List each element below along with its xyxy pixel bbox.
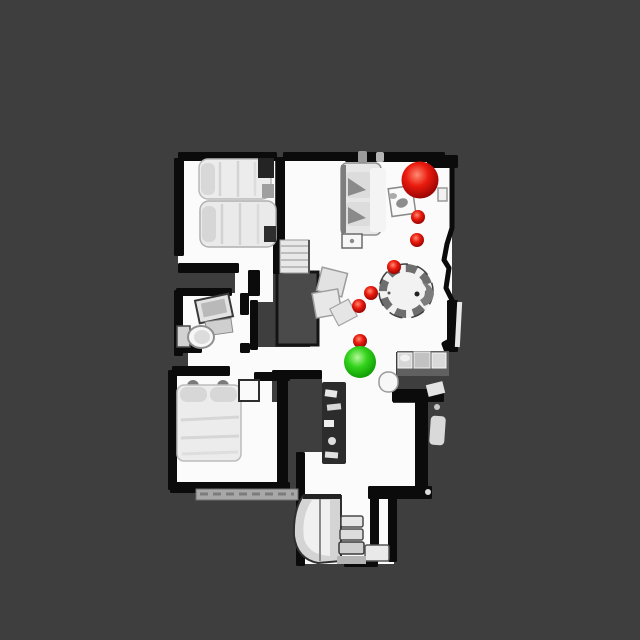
debris [429, 416, 446, 446]
dining-table-dot [415, 292, 420, 297]
wall [370, 498, 379, 548]
staircase [280, 240, 309, 273]
bed-pillow-shade [202, 206, 216, 242]
wall [248, 270, 260, 296]
kitchen-counter-top [432, 353, 446, 368]
waypoint-sphere [387, 260, 401, 274]
coffee-table-mark [350, 239, 354, 243]
waypoint-sphere [411, 210, 425, 224]
bed-pillow [210, 387, 237, 402]
waypoint-sphere [353, 334, 367, 348]
waypoint-sphere [364, 286, 378, 300]
wall [415, 396, 428, 491]
agent-sphere [344, 346, 376, 378]
chair-marks [389, 193, 397, 199]
bed-gap-shadow [264, 226, 276, 242]
wall [178, 263, 239, 273]
toilet-seat [194, 330, 210, 344]
entry-step-shadow [337, 556, 366, 564]
entry-step [341, 516, 363, 527]
kitchen-counter-top [414, 352, 430, 368]
wall-frame [438, 188, 447, 201]
kitchen-sink [400, 355, 410, 362]
wall [283, 152, 349, 161]
bed-gap-shadow [262, 184, 274, 198]
curtain-marks [358, 151, 367, 163]
sofa-seat [370, 168, 386, 232]
nightstand [239, 380, 259, 401]
waypoint-sphere [410, 233, 424, 247]
shelf-item [324, 420, 334, 427]
wall [172, 366, 230, 376]
shelf-item [325, 452, 338, 459]
piano-top-edge [303, 494, 341, 499]
wall [276, 157, 285, 243]
wall [240, 343, 250, 353]
dining-table-mark [388, 292, 391, 295]
entry-step [340, 529, 363, 540]
stairwell-void [277, 272, 318, 345]
entry-step [339, 542, 364, 554]
bed-quilt-line [181, 436, 239, 438]
wall [368, 486, 432, 499]
bed-pillow [180, 387, 207, 402]
target-sphere [402, 162, 439, 199]
bed-quilt-line [182, 452, 238, 454]
bed-corner-shadow [258, 158, 274, 178]
wall [250, 300, 258, 350]
curtain-marks [376, 152, 384, 162]
door-leaf [379, 372, 398, 392]
wall [168, 370, 177, 490]
entry-landing [365, 545, 389, 561]
bed-pillow-shade [201, 163, 215, 195]
scan-viewer [0, 0, 640, 640]
waypoint-sphere [352, 299, 366, 313]
wall [240, 293, 249, 315]
debris [434, 404, 440, 410]
wall [277, 374, 288, 488]
debris [425, 489, 431, 495]
wall [174, 158, 184, 256]
map-viewport[interactable] [0, 0, 640, 640]
sofa-back-rail [341, 165, 346, 233]
shelf-item [328, 437, 336, 445]
